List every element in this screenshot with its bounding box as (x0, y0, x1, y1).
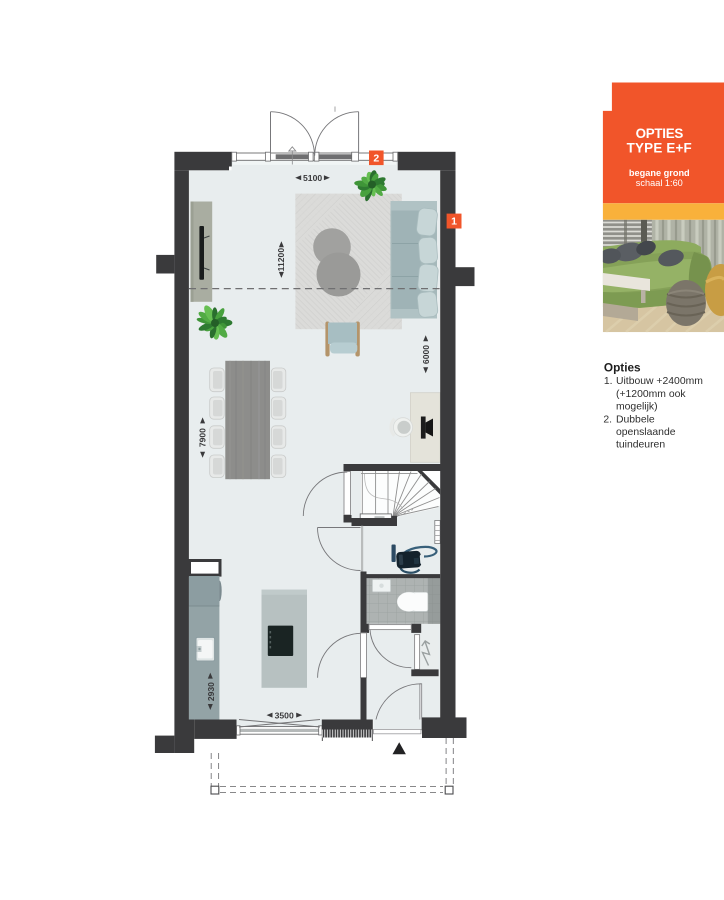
svg-text:begane grond: begane grond (629, 168, 690, 178)
svg-text:mogelijk): mogelijk) (616, 402, 658, 413)
svg-text:2: 2 (373, 152, 379, 164)
svg-text:2.: 2. (603, 414, 612, 425)
svg-text:schaal 1:60: schaal 1:60 (636, 178, 683, 188)
svg-text:TYPE E+F: TYPE E+F (627, 141, 692, 156)
svg-text:tuindeuren: tuindeuren (616, 440, 665, 451)
svg-text:7900: 7900 (197, 428, 207, 447)
svg-text:Dubbele: Dubbele (616, 414, 655, 425)
svg-text:OPTIES: OPTIES (636, 126, 684, 141)
svg-text:Uitbouw +2400mm: Uitbouw +2400mm (616, 376, 703, 387)
svg-text:5100: 5100 (303, 173, 322, 183)
svg-text:1: 1 (451, 216, 457, 228)
svg-text:2930: 2930 (206, 682, 216, 701)
svg-text:Opties: Opties (604, 361, 641, 375)
svg-text:(+1200mm ook: (+1200mm ook (616, 389, 686, 400)
svg-text:openslaande: openslaande (616, 427, 676, 438)
svg-text:11200: 11200 (276, 248, 286, 272)
svg-text:6000: 6000 (421, 345, 431, 364)
svg-text:1.: 1. (604, 376, 613, 387)
svg-text:3500: 3500 (275, 710, 294, 720)
